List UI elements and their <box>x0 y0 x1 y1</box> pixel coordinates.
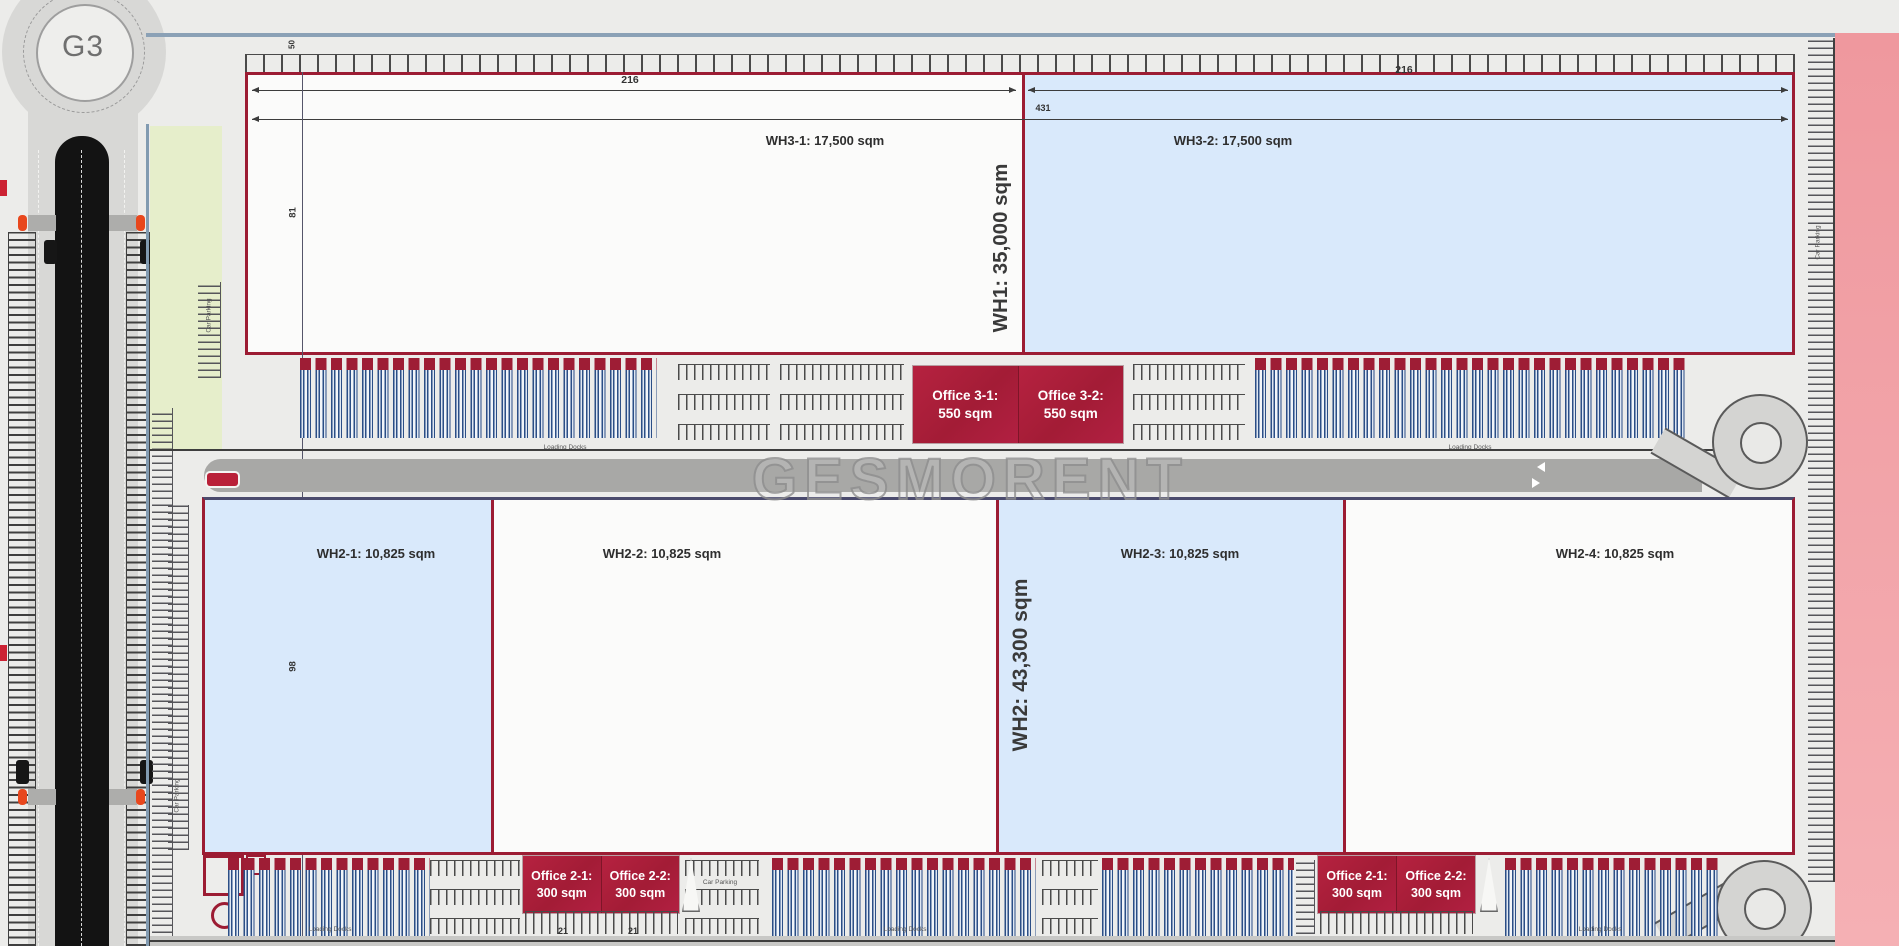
road-lane-dash-right <box>124 150 125 946</box>
car-icon <box>16 760 29 784</box>
unit-divider <box>1343 500 1346 852</box>
dock-doors <box>1505 858 1722 870</box>
unit-label-wh2-3: WH2-3: 10,825 sqm <box>1055 546 1305 561</box>
plan-west-edge-line <box>146 124 149 946</box>
turning-loop-island <box>1744 888 1786 930</box>
top-parking-row <box>245 54 1795 73</box>
parking-caption: Car Parking <box>174 766 181 826</box>
office-area: 550 sqm <box>913 405 1018 423</box>
loading-docks-caption: Loading Docks <box>845 926 965 933</box>
unit-label-wh2-2: WH2-2: 10,825 sqm <box>537 546 787 561</box>
dock-row <box>300 358 657 438</box>
curb-marker <box>0 180 7 196</box>
crosswalk-south-left <box>28 789 56 805</box>
top-road-line <box>146 33 1835 37</box>
office-area: 300 sqm <box>523 885 601 901</box>
office-label: Office 2-2: <box>602 868 680 884</box>
road-median <box>55 136 109 946</box>
crosswalk-cap <box>18 215 27 231</box>
parking-caption: Car Parking <box>206 286 213 346</box>
office-label: Office 2-1: <box>523 868 601 884</box>
dim-wh3-2-width: 216 <box>1334 64 1474 76</box>
dock-doors <box>1102 858 1294 870</box>
unit-label-wh3-1: WH3-1: 17,500 sqm <box>700 133 950 148</box>
dock-row <box>1102 858 1294 938</box>
crosswalk-cap <box>18 789 27 805</box>
crosswalk-south-right <box>109 789 137 805</box>
office-3-2: Office 3-2: 550 sqm <box>1018 366 1124 443</box>
office-2-2-a: Office 2-2: 300 sqm <box>601 856 680 913</box>
wh1-office-block: Office 3-1: 550 sqm Office 3-2: 550 sqm <box>913 366 1123 443</box>
truck-trailers <box>1102 870 1294 938</box>
dim-front-setback: 50 <box>288 15 297 75</box>
curb-marker <box>0 645 7 661</box>
dim-office-width: 21 <box>613 926 653 936</box>
truck-trailers <box>1255 370 1689 438</box>
office-label: Office 3-2: <box>1019 387 1124 405</box>
dim-line-wh3-2 <box>1028 90 1788 91</box>
dim-wh3-1-width: 216 <box>560 74 700 86</box>
car-parking-bars <box>678 364 770 440</box>
office-front-parking <box>1320 911 1473 934</box>
dim-office-width: 21 <box>543 926 583 936</box>
office-3-1: Office 3-1: 550 sqm <box>913 366 1018 443</box>
car-parking-bars <box>1042 860 1098 934</box>
office-area: 550 sqm <box>1019 405 1124 423</box>
office-area: 300 sqm <box>1397 885 1475 901</box>
office-label: Office 3-1: <box>913 387 1018 405</box>
unit-wh3-2-fill <box>1025 75 1792 352</box>
loading-docks-caption: Loading Docks <box>1540 926 1660 933</box>
crosswalk-north-right <box>109 215 137 231</box>
dim-wh2-depth: 98 <box>288 637 299 697</box>
office-area: 300 sqm <box>602 885 680 901</box>
dim-wh1-total-width: 431 <box>1003 103 1083 113</box>
office-label: Office 2-2: <box>1397 868 1475 884</box>
car-parking-comb <box>1296 860 1315 934</box>
site-plan: G3 Car Parking Car Parking Car Parking 2… <box>0 0 1899 946</box>
gate-marker <box>207 473 238 486</box>
dim-line-wh1-total <box>252 119 1788 120</box>
bottom-road-line <box>150 940 1835 942</box>
car-parking-bars <box>1133 364 1245 440</box>
office-2-1-a: Office 2-1: 300 sqm <box>523 856 601 913</box>
warehouse-1-building <box>245 72 1795 355</box>
dim-line-wh3-1 <box>252 90 1016 91</box>
car-parking-bars <box>780 364 904 440</box>
road-arrow-left-icon <box>1532 462 1545 472</box>
car-icon <box>44 240 57 264</box>
crosswalk-north-left <box>28 215 56 231</box>
office-label: Office 2-1: <box>1318 868 1396 884</box>
wh2-office-block-b: Office 2-1: 300 sqm Office 2-2: 300 sqm <box>1318 856 1475 913</box>
dock-doors <box>300 358 657 370</box>
roundabout-label: G3 <box>36 30 130 64</box>
dim-wh1-depth: 81 <box>288 183 299 243</box>
office-2-1-b: Office 2-1: 300 sqm <box>1318 856 1396 913</box>
dock-doors <box>772 858 1036 870</box>
unit-divider <box>1022 75 1025 352</box>
office-area: 300 sqm <box>1318 885 1396 901</box>
turning-loop-island <box>1740 422 1782 464</box>
car-parking-bars <box>430 860 520 934</box>
east-parking-caption: Car Parking <box>1815 213 1822 273</box>
east-parking-column <box>1808 38 1835 882</box>
unit-label-wh3-2: WH3-2: 17,500 sqm <box>1108 133 1358 148</box>
wh2-total-label: WH2: 43,300 sqm <box>1009 515 1033 815</box>
crosswalk-cap <box>136 215 145 231</box>
dock-ramp <box>1480 858 1498 912</box>
roadside-parking-west <box>8 232 36 946</box>
watermark: GESMORENT <box>752 446 1189 513</box>
dock-row <box>1255 358 1689 438</box>
loading-docks-caption: Loading Docks <box>270 926 390 933</box>
crosswalk-cap <box>136 789 145 805</box>
dock-doors <box>228 858 430 870</box>
wh2-office-block-a: Office 2-1: 300 sqm Office 2-2: 300 sqm <box>523 856 679 913</box>
unit-label-wh2-1: WH2-1: 10,825 sqm <box>251 546 501 561</box>
road-arrow-right-icon <box>1532 478 1545 488</box>
pink-band <box>1835 33 1899 946</box>
unit-label-wh2-4: WH2-4: 10,825 sqm <box>1490 546 1740 561</box>
office-2-2-b: Office 2-2: 300 sqm <box>1396 856 1475 913</box>
wh1-total-label: WH1: 35,000 sqm <box>989 98 1013 398</box>
road-lane-dash-left <box>38 150 39 946</box>
truck-trailers <box>300 370 657 438</box>
unit-divider <box>996 500 999 852</box>
dock-doors <box>1255 358 1689 370</box>
road-median-centerline <box>81 150 82 946</box>
